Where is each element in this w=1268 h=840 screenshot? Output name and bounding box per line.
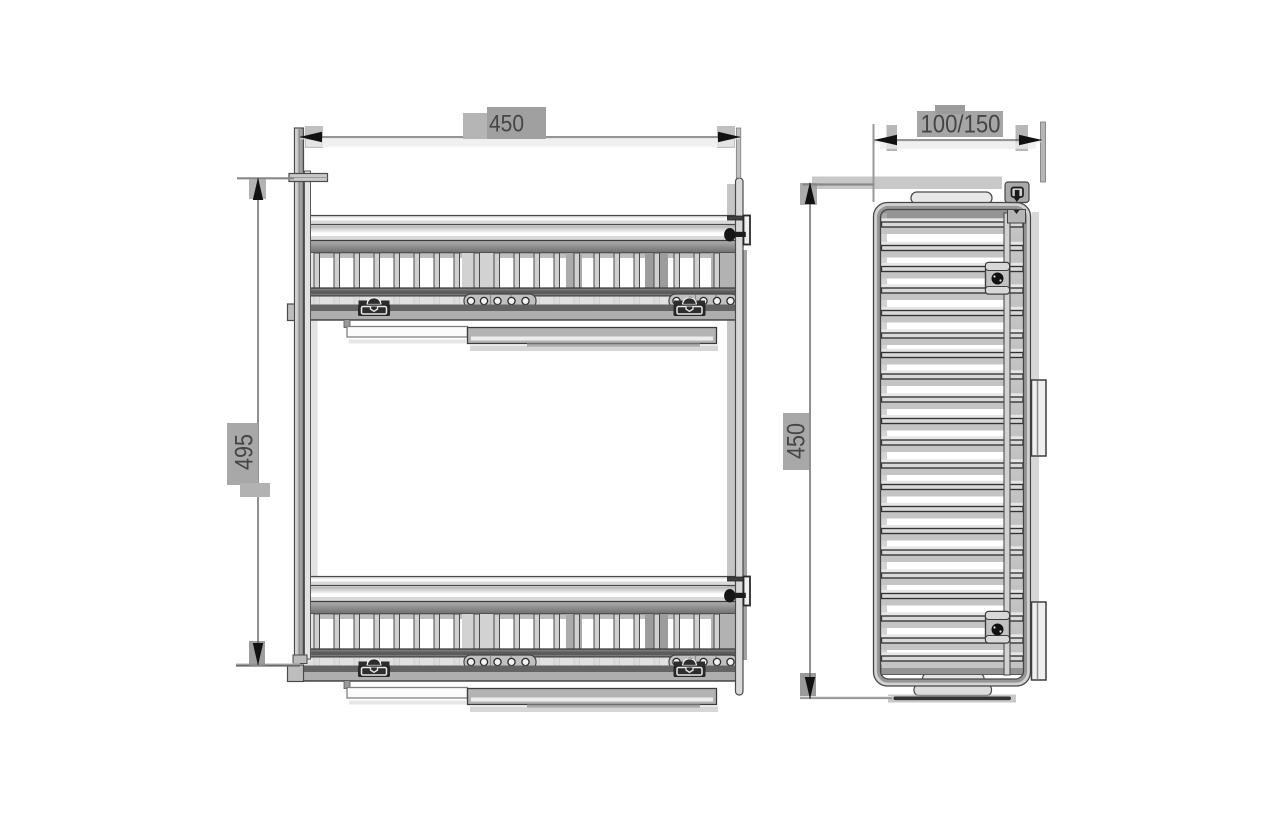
svg-text:495: 495 — [231, 434, 259, 470]
svg-text:450: 450 — [783, 423, 811, 459]
svg-text:450: 450 — [489, 111, 524, 138]
svg-text:100/150: 100/150 — [921, 111, 1001, 139]
